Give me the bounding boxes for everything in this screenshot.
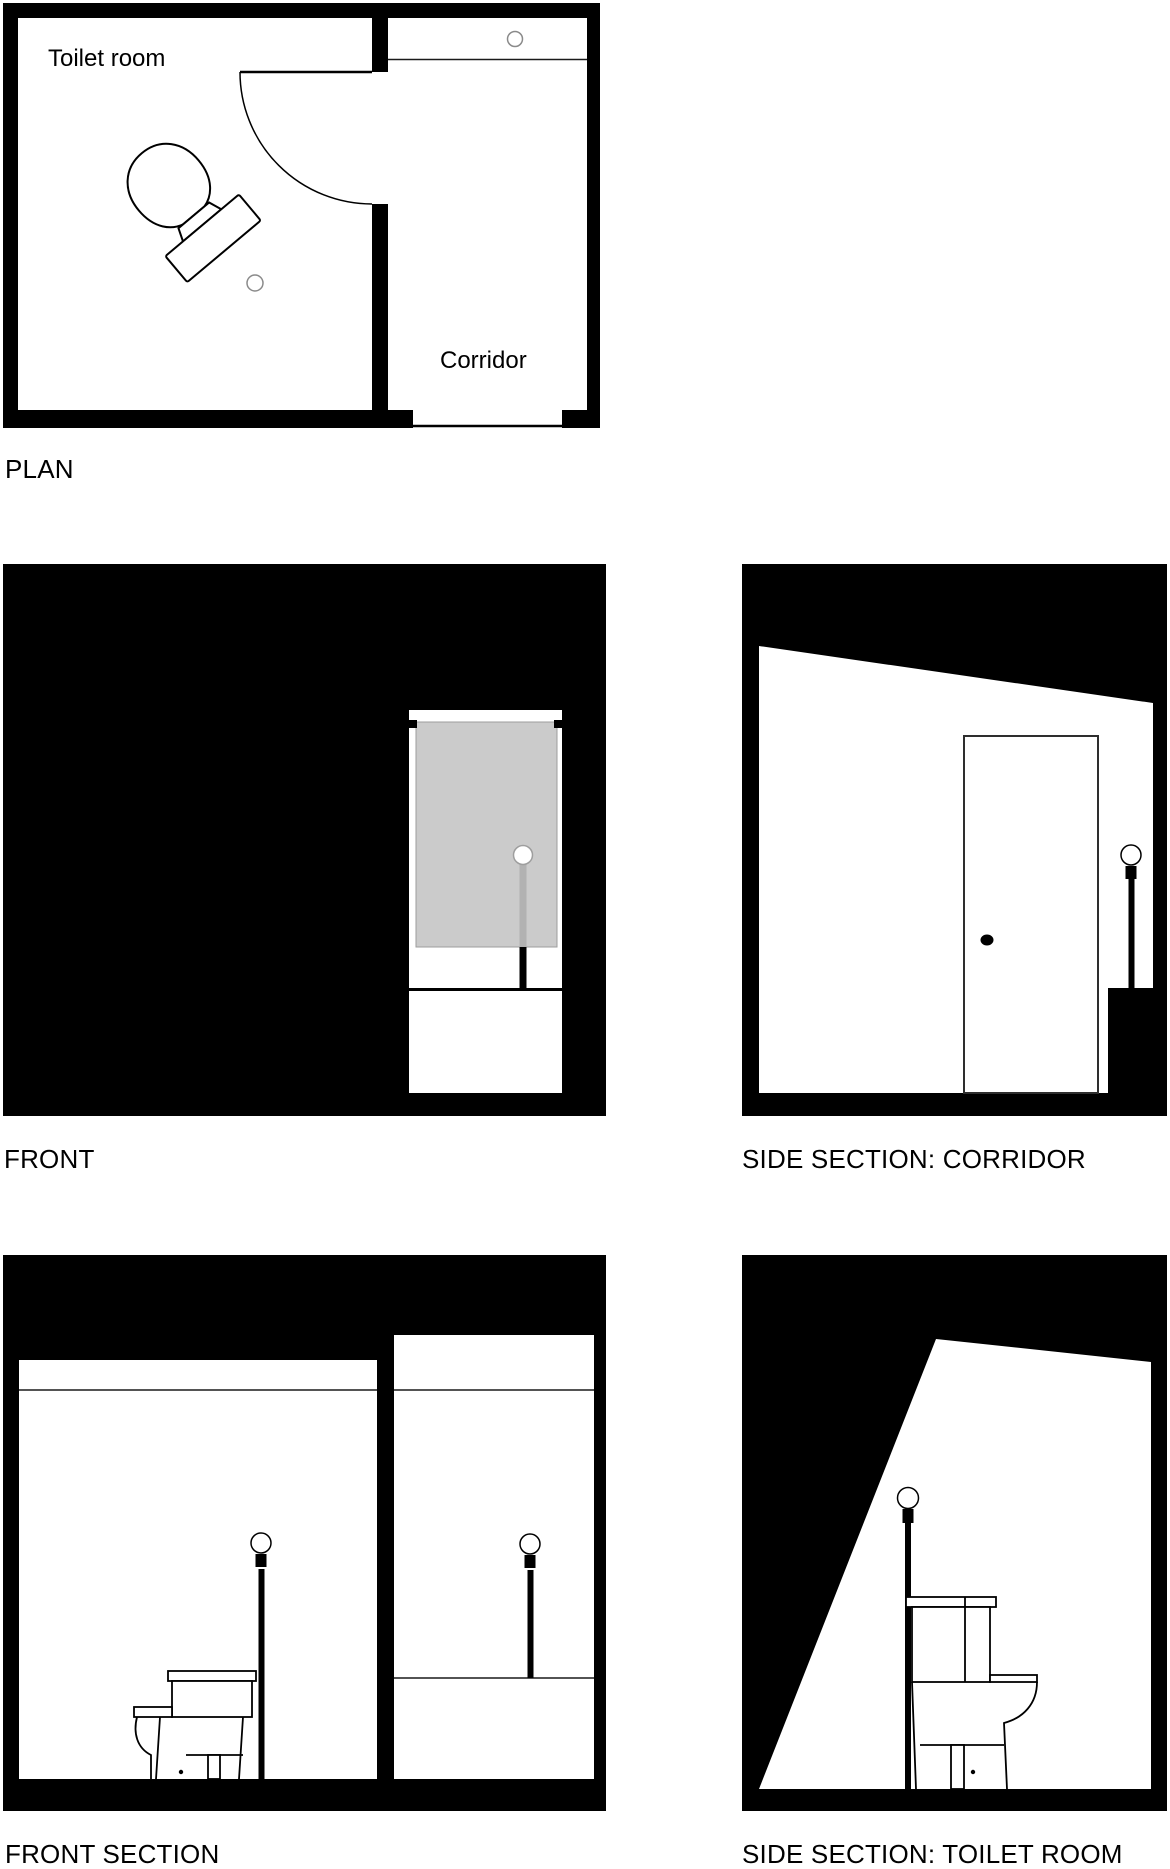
drawing-sheet: Toilet room Corridor PLAN FRONT (0, 0, 1170, 1869)
lintel-tick-right (554, 720, 562, 728)
lamp-pole-lower (520, 947, 527, 988)
side-section-toilet-view (742, 1255, 1167, 1811)
toilet-seat (134, 1707, 172, 1717)
front-drawing (3, 564, 606, 1116)
toilet-bolt-cap (971, 1770, 975, 1774)
door-knob-icon (981, 935, 994, 946)
toilet-tank-lid (168, 1671, 256, 1681)
side-section-toilet-drawing (742, 1255, 1167, 1811)
lintel-tick-left (409, 720, 417, 728)
front-section-title: FRONT SECTION (5, 1841, 219, 1867)
lamp-socket (903, 1509, 914, 1523)
side-section-corridor-title: SIDE SECTION: CORRIDOR (742, 1146, 1086, 1172)
front-view (3, 564, 606, 1116)
lamp-bulb-icon (251, 1533, 271, 1553)
toilet-room-label: Toilet room (48, 45, 165, 72)
toilet-seat (990, 1675, 1037, 1682)
toilet-tank (912, 1607, 990, 1682)
lamp-socket (525, 1555, 536, 1568)
toilet-room-door (964, 736, 1098, 1093)
corridor-interior (394, 1335, 594, 1779)
lamp-bulb-icon (520, 1534, 540, 1554)
front-section-drawing (3, 1255, 606, 1811)
side-section-corridor-drawing (742, 564, 1167, 1116)
lamp-pole-behind-glass (520, 864, 527, 947)
lamp-bulb-icon (514, 846, 533, 865)
toilet-tank (172, 1681, 252, 1717)
lamp-pole (1129, 879, 1135, 988)
lamp-pole (528, 1570, 534, 1678)
plan-view: Toilet room Corridor (3, 3, 600, 428)
side-section-corridor-view (742, 564, 1167, 1116)
entrance-step (1108, 988, 1167, 1116)
lamp-pole (905, 1523, 911, 1789)
corridor-label: Corridor (440, 347, 527, 374)
side-section-toilet-title: SIDE SECTION: TOILET ROOM (742, 1841, 1123, 1867)
lamp-socket (1126, 866, 1137, 879)
lamp-bulb-icon (898, 1488, 919, 1509)
toilet-foot (208, 1755, 220, 1779)
plan-drawing: Toilet room Corridor (3, 3, 600, 428)
front-section-view (3, 1255, 606, 1811)
front-title: FRONT (4, 1146, 95, 1172)
plan-title: PLAN (5, 456, 74, 482)
lamp-bulb-icon (1121, 845, 1141, 865)
lamp-pole (259, 1569, 265, 1779)
toilet-foot (951, 1745, 964, 1789)
toilet-tank-lid (906, 1597, 996, 1607)
lamp-socket (256, 1554, 267, 1567)
door-opening (372, 72, 388, 204)
toilet-bolt-cap (179, 1770, 183, 1774)
glass-door-panel (416, 722, 557, 947)
